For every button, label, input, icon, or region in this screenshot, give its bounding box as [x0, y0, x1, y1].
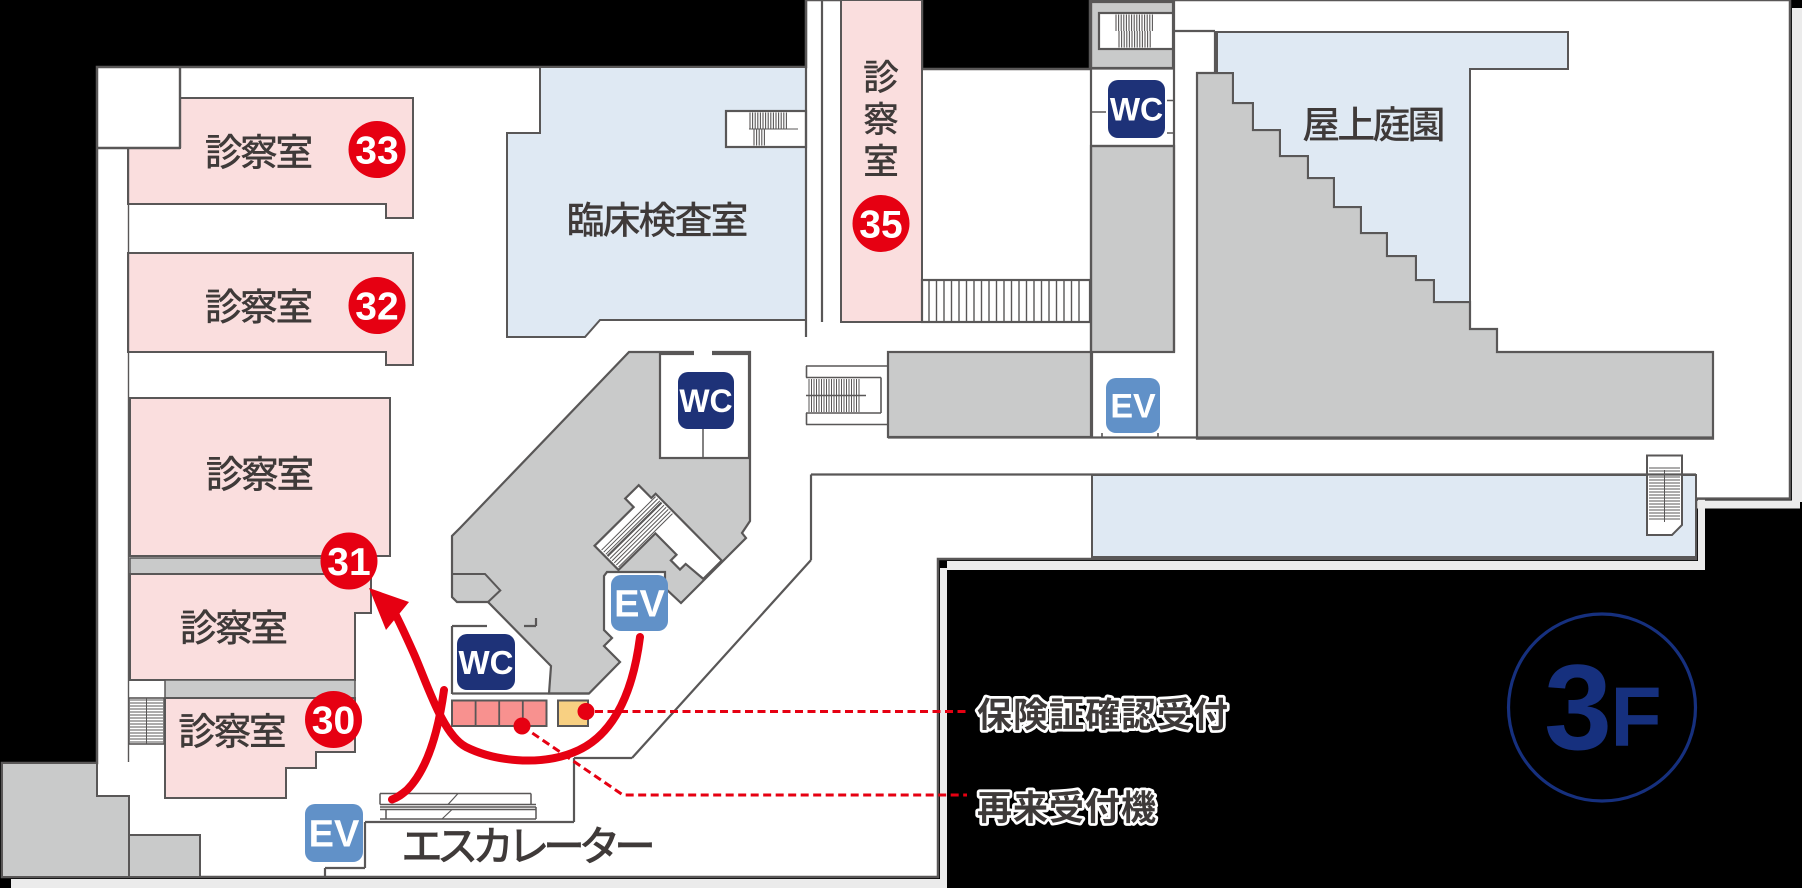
svg-text:30: 30	[312, 700, 355, 743]
svg-text:EV: EV	[309, 814, 360, 856]
svg-text:33: 33	[355, 130, 398, 173]
svg-text:31: 31	[327, 541, 370, 584]
svg-text:WC: WC	[679, 383, 732, 419]
svg-text:EV: EV	[614, 584, 665, 626]
svg-text:EV: EV	[1110, 388, 1156, 426]
svg-text:F: F	[1610, 670, 1661, 764]
svg-text:3: 3	[1544, 639, 1612, 775]
svg-text:WC: WC	[459, 644, 514, 681]
svg-text:WC: WC	[1110, 92, 1163, 128]
svg-text:32: 32	[355, 286, 398, 329]
svg-text:35: 35	[859, 204, 902, 247]
